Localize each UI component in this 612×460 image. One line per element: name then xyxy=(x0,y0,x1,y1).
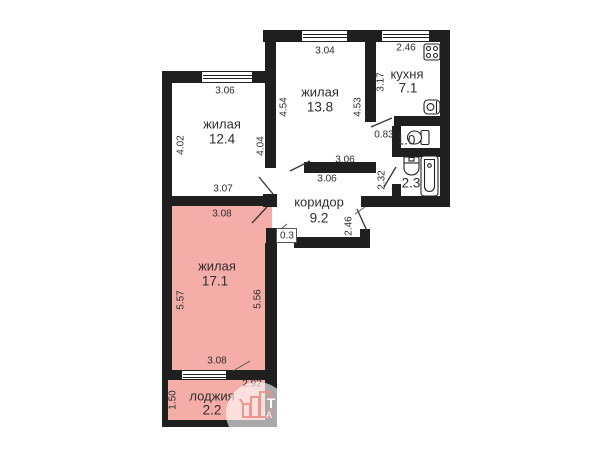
floor-plan: 3.06 4.02 4.04 3.07 жилая 12.4 3.04 4.54… xyxy=(0,0,612,460)
watermark-letter-bottom: А xyxy=(266,410,272,420)
agency-logo-icon xyxy=(0,0,612,460)
watermark-letter-top: Т xyxy=(267,395,276,411)
